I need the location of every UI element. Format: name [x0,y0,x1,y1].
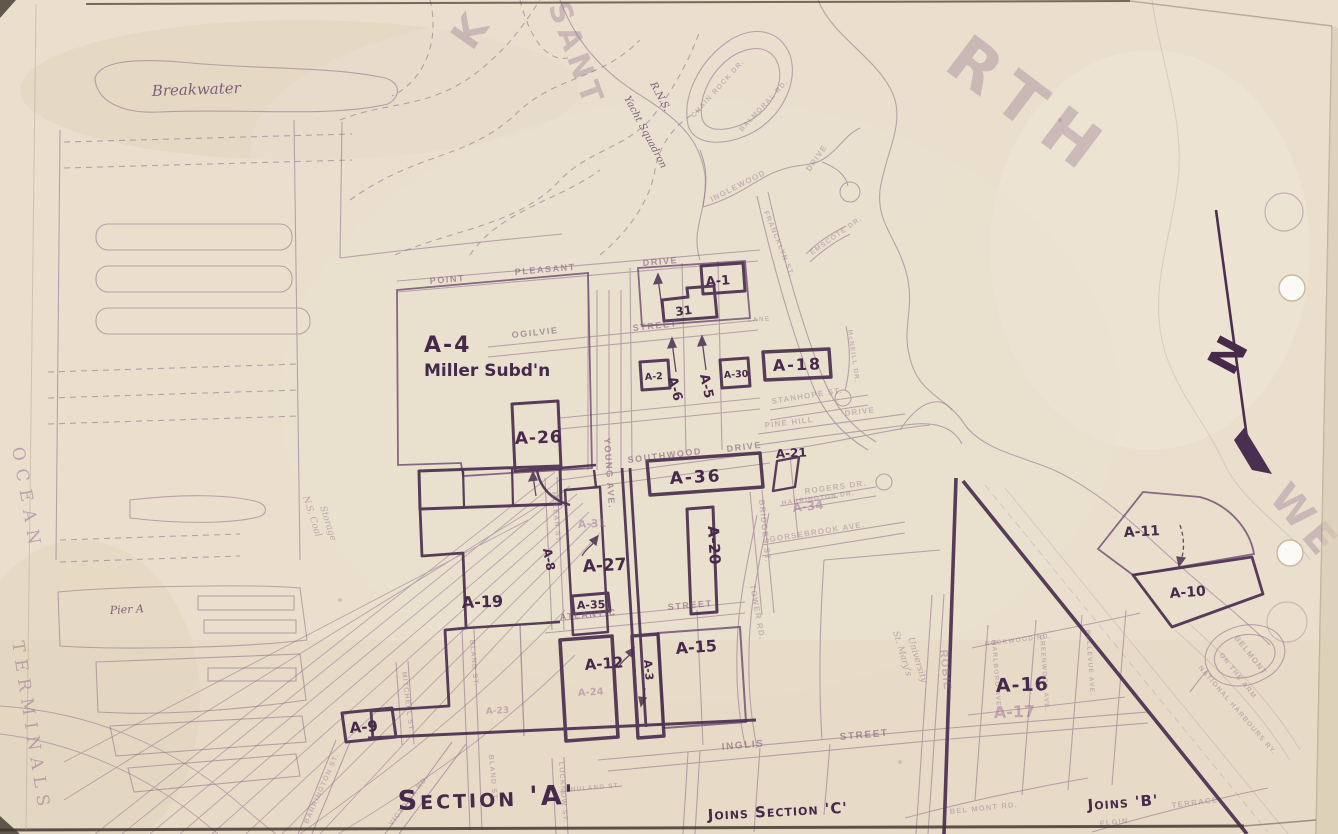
lot-a27: A-27 [582,555,627,577]
paper-background [0,0,1338,834]
lot-a9: A-9 [349,717,378,737]
lot-a24: A-24 [578,687,604,699]
lot-a16: A-16 [995,673,1049,697]
lot-a31: A-31 [577,517,606,531]
lot-a1: A-1 [705,273,731,290]
breakwater-label: Breakwater [151,79,242,100]
lot-a17: A-17 [993,702,1035,722]
lot-a4: A-4 [424,333,471,358]
lot-a11: A-11 [1123,523,1160,541]
lot-a2: A-2 [645,371,663,383]
lot-a26: A-26 [514,427,563,449]
section-a-title: Section 'A' [397,780,576,817]
lot-a21: A-21 [775,445,807,461]
lot-31: 31 [674,303,692,319]
lot-a30: A-30 [724,369,749,381]
lot-a36: A-36 [669,466,722,489]
scanned-map-page: N RTH WE K SANT OCEAN TERMINALS POINT PL… [0,0,1338,834]
punch-hole-top [1279,275,1305,301]
lot-a20: A-20 [704,525,724,565]
lot-a19: A-19 [461,592,503,612]
lot-a35: A-35 [577,598,606,612]
map-canvas: N RTH WE K SANT OCEAN TERMINALS POINT PL… [0,0,1338,834]
lot-a12: A-12 [584,653,624,674]
lot-a18: A-18 [772,354,822,375]
lot-a23: A-23 [486,706,510,717]
lot-a3: A-3 [641,659,656,681]
miller-subdn: Miller Subd'n [424,361,550,381]
lot-a15: A-15 [675,636,718,658]
lot-a10: A-10 [1169,583,1206,601]
pier-a-label: Pier A [108,602,144,617]
